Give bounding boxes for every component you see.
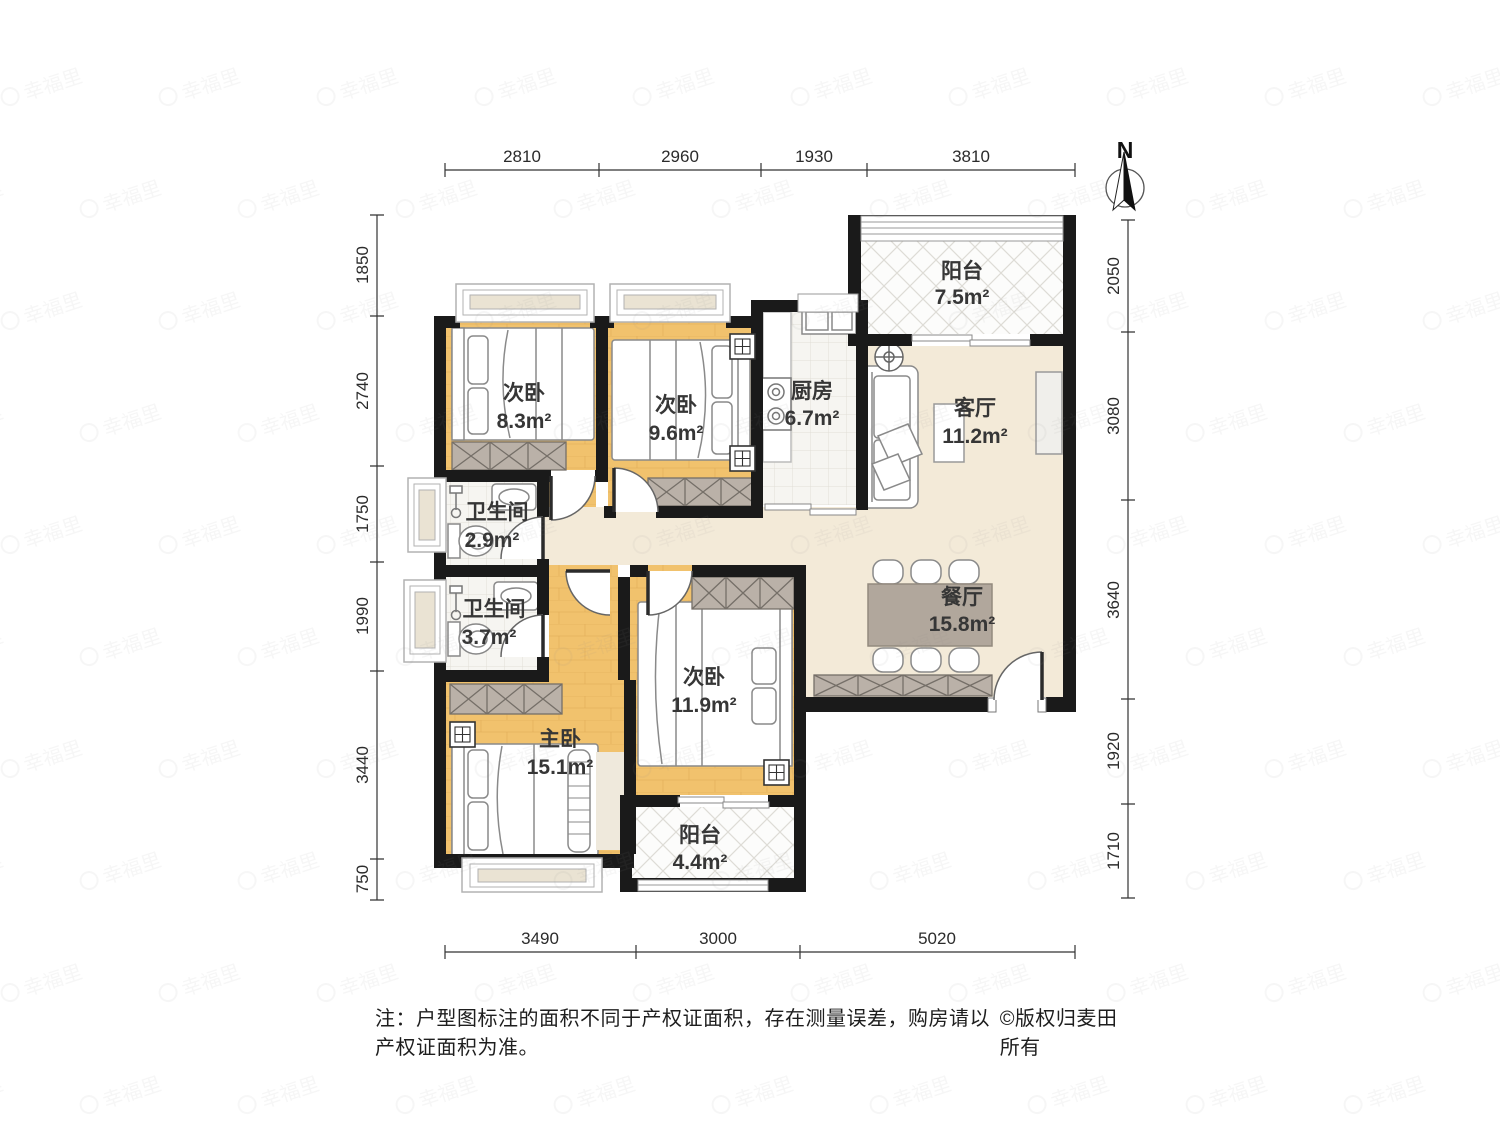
chair [873,648,903,672]
sliding-door-balcony-top [912,335,1030,346]
chair [949,560,979,584]
room-label-balcony-top: 阳台 [941,259,983,283]
svg-text:1990: 1990 [353,597,372,635]
svg-text:2740: 2740 [353,372,372,410]
chair [949,648,979,672]
dimension-left: 1850 2740 1750 1990 3440 750 [353,215,384,900]
dimension-right: 2050 3080 3640 1920 1710 [1104,220,1135,898]
wardrobe-master [450,684,562,714]
shower-head [450,586,462,593]
window-bedroom-96 [610,284,730,322]
window-balcony-bottom [638,880,768,891]
window-bath-37 [404,580,446,662]
room-label-living: 客厅 [954,396,996,420]
room-area-kitchen: 6.7m² [785,407,840,430]
svg-text:3810: 3810 [952,147,990,166]
svg-text:3440: 3440 [353,746,372,784]
room-area-dining: 15.8m² [929,613,996,636]
sliding-door-balcony-bottom [678,797,769,808]
svg-text:3640: 3640 [1104,581,1123,619]
room-area-bedroom-83: 8.3m² [497,410,552,433]
room-label-bedroom-119: 次卧 [683,665,725,689]
chair [911,560,941,584]
window-bedroom-83 [456,284,594,322]
svg-text:5020: 5020 [918,929,956,948]
rug [596,752,624,850]
svg-text:750: 750 [353,865,372,893]
svg-text:1930: 1930 [795,147,833,166]
entry-cabinet [814,675,992,696]
room-area-bath-29: 2.9m² [465,529,520,552]
window-bath-29 [408,478,446,552]
tv-cabinet [1036,372,1062,454]
sofa [860,366,922,508]
wardrobe-bedroom-83 [452,442,566,470]
floorplan-page: 阳台 7.5m² 次卧 8.3m² 次卧 9.6m² 厨房 6.7m² 客厅 1… [0,0,1500,1125]
ac-unit-icon [730,446,755,471]
svg-text:1920: 1920 [1104,732,1123,770]
svg-text:2050: 2050 [1104,257,1123,295]
room-label-bedroom-83: 次卧 [503,381,545,405]
dimension-top: 2810 2960 1930 3810 [445,147,1075,177]
room-area-living: 11.2m² [942,425,1007,448]
svg-text:2810: 2810 [503,147,541,166]
wardrobe-bedroom-96 [648,478,758,506]
room-area-balcony-top: 7.5m² [935,286,990,309]
wardrobe-bedroom-119 [692,577,794,609]
svg-text:1850: 1850 [353,246,372,284]
window-master [462,858,602,892]
shower-head [450,486,462,493]
room-label-bath-29: 卫生间 [466,500,529,524]
svg-text:3490: 3490 [521,929,559,948]
room-label-dining: 餐厅 [941,585,983,609]
room-label-bedroom-96: 次卧 [655,393,697,417]
toilet-tank [448,622,460,656]
fan-icon [875,343,903,371]
window-kitchen [798,294,858,312]
ac-unit-icon [730,334,755,359]
window-balcony-top [861,216,1063,241]
footer: 注：户型图标注的面积不同于产权证面积，存在测量误差，购房请以产权证面积为准。 ©… [375,1002,1127,1060]
svg-text:1750: 1750 [353,495,372,533]
room-label-kitchen: 厨房 [791,379,833,403]
room-area-bedroom-96: 9.6m² [649,422,704,445]
north-indicator: N [1106,137,1144,210]
svg-text:3080: 3080 [1104,397,1123,435]
ac-unit-icon [450,722,475,747]
toilet-tank [448,524,460,558]
svg-text:3000: 3000 [699,929,737,948]
floorplan-svg: 阳台 7.5m² 次卧 8.3m² 次卧 9.6m² 厨房 6.7m² 客厅 1… [0,0,1500,1125]
room-label-master: 主卧 [539,728,581,751]
room-area-bedroom-119: 11.9m² [671,694,736,717]
chair [911,648,941,672]
chair [873,560,903,584]
dimension-bottom: 3490 3000 5020 [445,929,1075,959]
room-label-bath-37: 卫生间 [463,597,526,621]
ac-unit-icon [764,760,789,785]
room-label-balcony-bottom: 阳台 [679,823,721,847]
svg-text:1710: 1710 [1104,832,1123,870]
room-area-bath-37: 3.7m² [462,626,517,649]
svg-text:2960: 2960 [661,147,699,166]
room-area-balcony-bottom: 4.4m² [673,851,728,874]
disclaimer-note: 注：户型图标注的面积不同于产权证面积，存在测量误差，购房请以产权证面积为准。 [375,1002,1000,1060]
copyright: ©版权归麦田所有 [1000,1002,1127,1060]
room-area-master: 15.1m² [527,756,594,779]
